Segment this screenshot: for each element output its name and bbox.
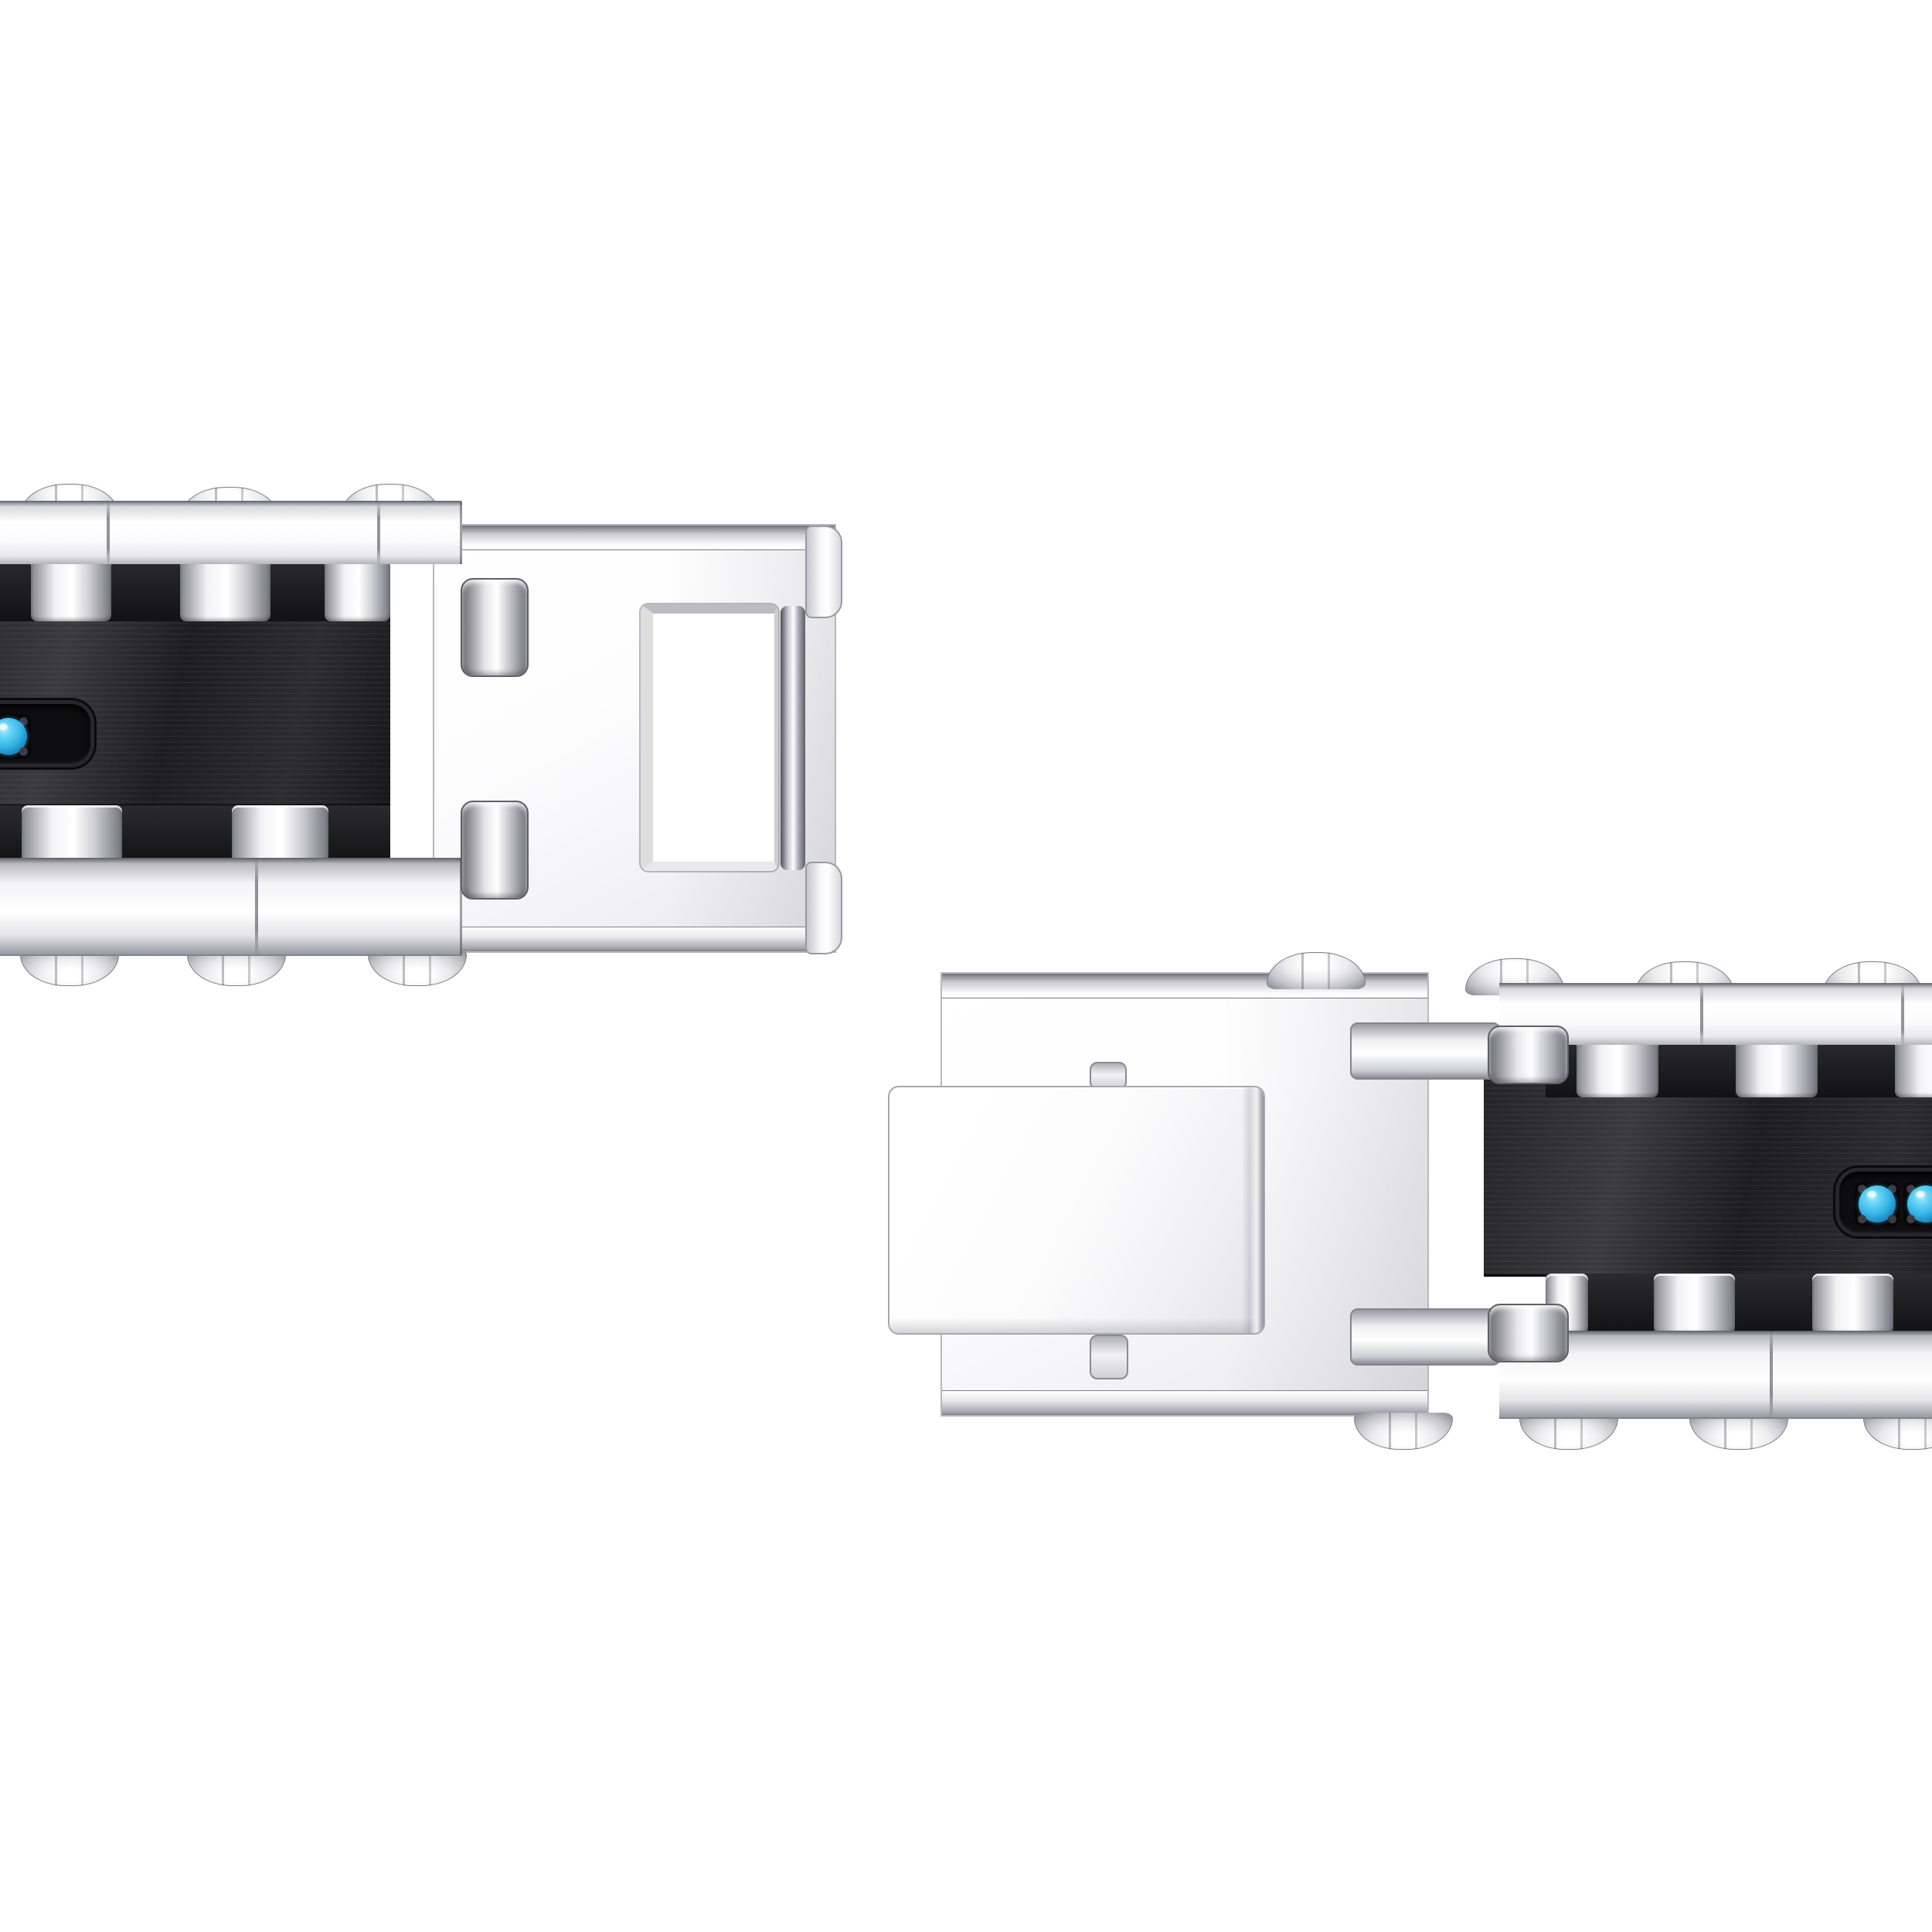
gem-setting [1903,1182,1932,1226]
fold-over-tongue-plate [888,1086,1265,1335]
blue-gem [1859,1185,1896,1223]
rivet-pin [1354,1413,1453,1450]
link-teeth-row-bottom [1546,1274,1932,1334]
product-photo-canvas [0,0,1932,1932]
rivet-pin [1267,952,1366,989]
link-teeth-row-top [1546,1039,1932,1097]
link-seam [1901,985,1904,1045]
block-bottom-bevel [942,1390,1427,1415]
tongue-hinge-tab-bottom [1090,1335,1128,1379]
blue-gem [1907,1185,1932,1223]
link-tooth [1654,1274,1735,1334]
link-tooth [1812,1274,1893,1334]
link-tooth [1895,1039,1932,1097]
link-tooth [1736,1039,1818,1097]
link-seam [1770,1331,1773,1417]
gem-channel [1835,1168,1932,1236]
hinge-knuckle [1488,1026,1569,1084]
bracelet-right-segment [0,0,1932,1932]
black-center-link [1484,1074,1932,1277]
link-seam [1700,985,1703,1045]
hinge-arm-bottom [1350,1308,1501,1366]
hinge-arm-top [1350,1022,1501,1080]
gem-setting [1855,1182,1900,1226]
hinge-knuckle [1488,1304,1569,1362]
link-tooth [1577,1039,1658,1097]
